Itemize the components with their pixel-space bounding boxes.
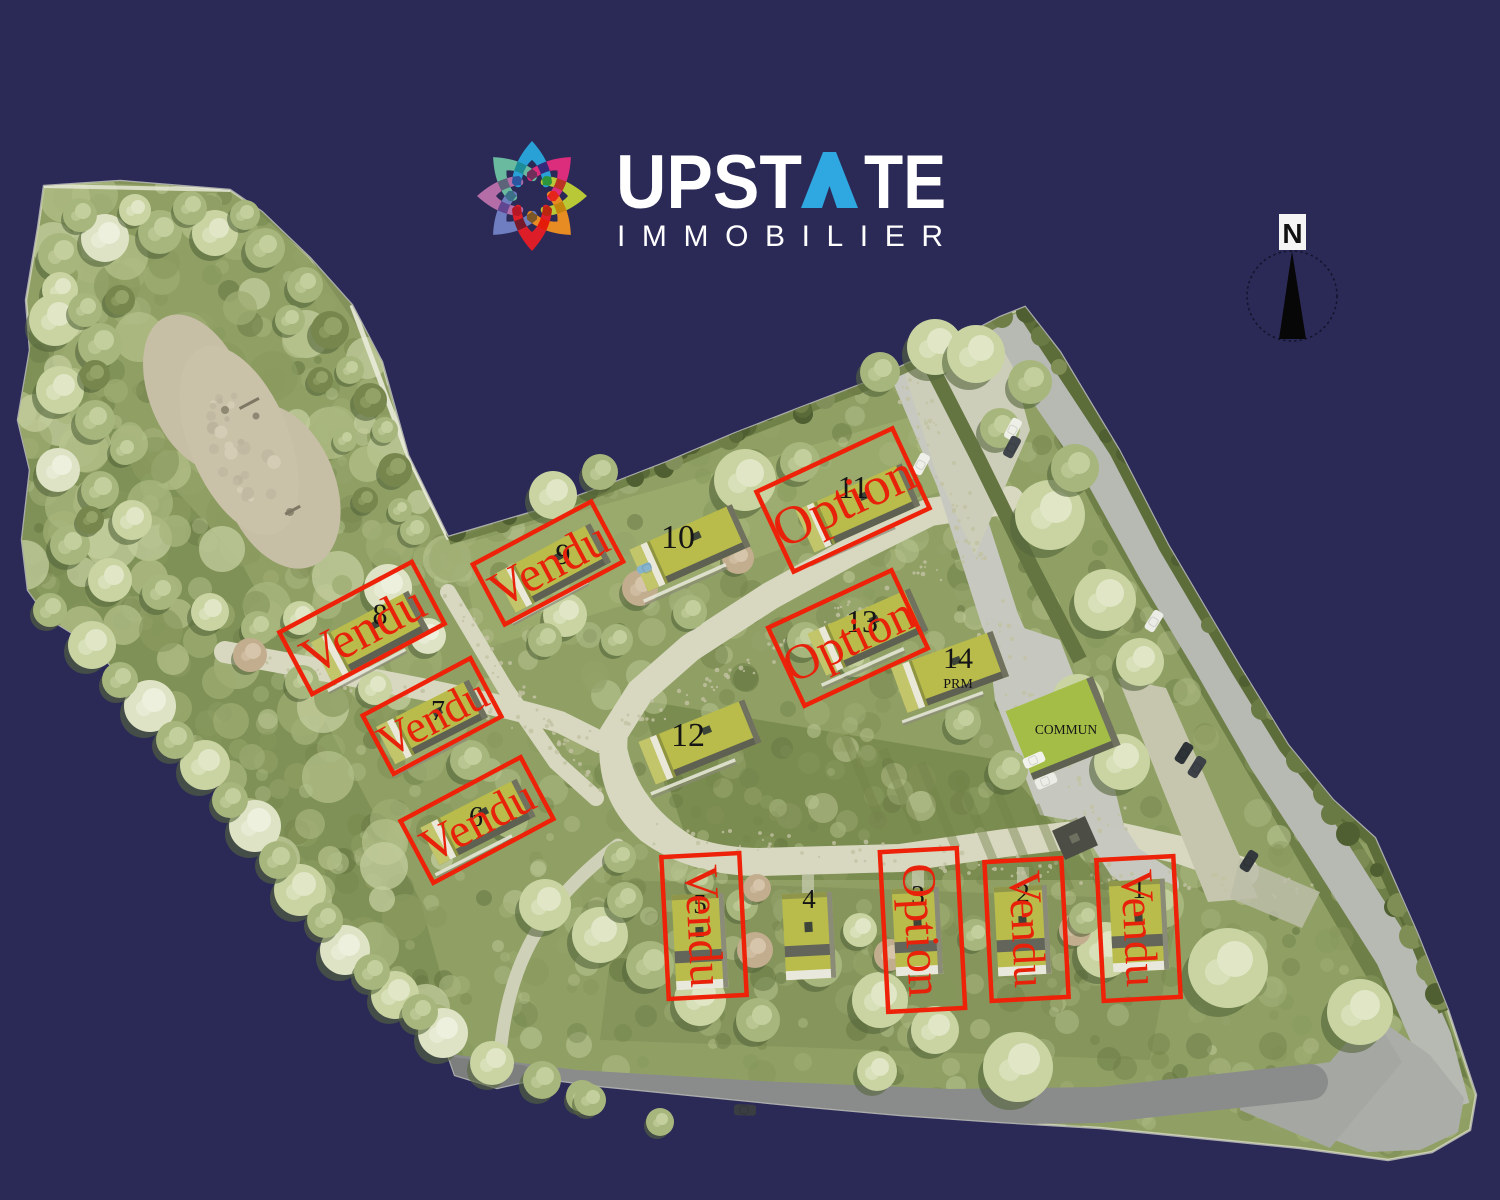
- svg-text:PRM: PRM: [943, 677, 973, 692]
- svg-text:Vendu: Vendu: [1111, 868, 1168, 988]
- svg-text:TE: TE: [864, 140, 946, 225]
- svg-text:UPST: UPST: [616, 140, 802, 225]
- svg-text:Vendu: Vendu: [674, 863, 733, 988]
- svg-text:4: 4: [802, 884, 816, 914]
- svg-text:N: N: [1282, 218, 1302, 249]
- svg-text:COMMUN: COMMUN: [1035, 722, 1098, 737]
- svg-text:14: 14: [943, 642, 973, 675]
- svg-text:IMMOBILIER: IMMOBILIER: [617, 220, 943, 253]
- svg-text:Vendu: Vendu: [999, 869, 1056, 989]
- svg-text:Option: Option: [892, 862, 952, 998]
- svg-text:12: 12: [671, 717, 705, 754]
- svg-text:10: 10: [661, 519, 695, 556]
